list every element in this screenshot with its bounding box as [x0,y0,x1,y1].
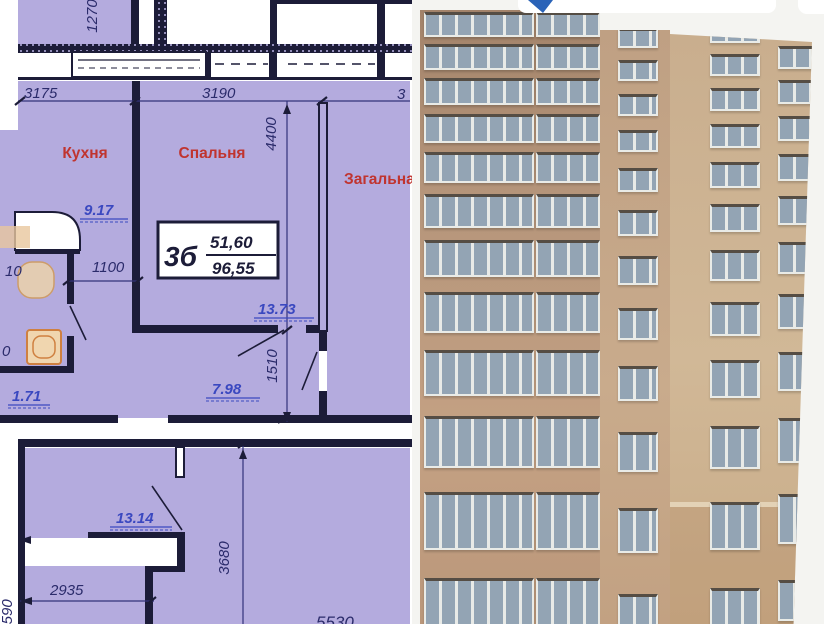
room-label-bedroom: Спальня [179,145,246,162]
window [778,294,812,329]
window [536,44,600,70]
window [536,240,600,277]
total-area-value: 96,55 [212,259,255,278]
room-label-kitchen: Кухня [62,145,107,162]
window [710,302,760,336]
facade-left-section [420,10,600,624]
window [778,418,812,463]
window [618,30,658,48]
window [424,12,534,37]
window [710,124,760,148]
window [424,578,534,624]
window [424,416,534,468]
dim-3190: 3190 [202,85,236,102]
unit-info-box: 3б 51,60 96,55 [158,222,278,278]
facade-right-section [670,34,812,624]
window [536,492,600,550]
window [618,308,658,340]
window [710,54,760,76]
area-kitchen: 9.17 [84,202,114,219]
window [618,130,658,152]
window [424,114,534,143]
dim-5530: 5530 [316,613,354,624]
window [618,594,658,624]
window [778,494,812,544]
logo-arrow-icon [526,0,556,13]
dim-1270: 1270 [84,0,101,33]
window [536,114,600,143]
window [710,250,760,281]
sink-icon [18,262,54,298]
room-label-living: Загальна [344,171,412,188]
dim-3680: 3680 [216,541,233,575]
window [618,508,658,553]
window [710,88,760,111]
window [710,360,760,398]
window [536,416,600,468]
window [618,256,658,285]
counter-fixture-icon [0,226,30,248]
window [536,12,600,37]
window [710,162,760,188]
dim-1100: 1100 [92,259,125,276]
window [536,194,600,228]
window [778,580,812,621]
window [778,46,812,69]
window [710,34,760,43]
window [778,352,812,391]
window [710,204,760,232]
dim-1510: 1510 [264,349,281,383]
area-bath: 1.71 [12,388,41,405]
window [536,578,600,624]
window [424,78,534,105]
window [778,34,812,36]
area-lower-room: 13.14 [116,510,154,527]
building-photo [412,0,824,624]
window [424,240,534,277]
unit-type: 3б [164,241,198,272]
window [778,80,812,104]
window [618,94,658,116]
area-corridor: 13.73 [258,301,296,318]
dim-1590: 1590 [0,599,16,624]
dim-2935: 2935 [49,582,84,599]
window [618,432,658,472]
window [778,242,812,274]
window [710,426,760,469]
window [778,116,812,141]
window [424,194,534,228]
window [618,168,658,192]
toilet-icon [27,330,61,364]
window [710,588,760,624]
window [424,350,534,396]
dim-right-partial: 3 [397,86,406,103]
window [536,78,600,105]
window [424,152,534,183]
dim-left-partial-a: 10 [5,263,22,280]
facade-middle-section [600,30,670,624]
dim-3175: 3175 [24,85,58,102]
window [424,492,534,550]
window [778,196,812,225]
window [618,60,658,81]
dim-4400: 4400 [263,117,280,151]
window [778,154,812,181]
floor-plan: 3б 51,60 96,55 Кухня Спальня Загальна 9.… [0,0,412,624]
dim-left-partial-b: 0 [2,343,11,360]
window [424,44,534,70]
watermark-corner [798,0,824,14]
area-hall: 7.98 [212,381,242,398]
window [618,210,658,236]
window [536,292,600,333]
window [710,502,760,550]
window [618,366,658,401]
watermark-bar [518,0,776,13]
real-estate-composite: 3б 51,60 96,55 Кухня Спальня Загальна 9.… [0,0,824,624]
window [536,152,600,183]
living-area-value: 51,60 [210,233,253,252]
window [536,350,600,396]
window [424,292,534,333]
